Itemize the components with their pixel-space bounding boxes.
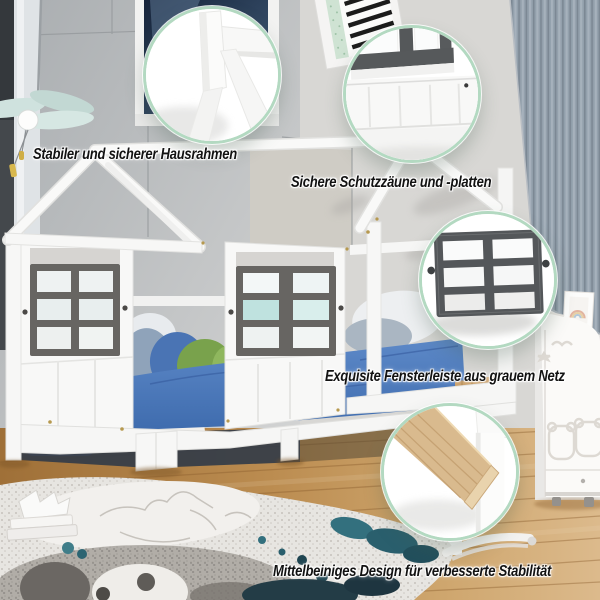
callout-window-mesh-detail: [419, 211, 557, 349]
fan-pull-tassel: [19, 151, 24, 160]
callout-center-leg-detail: [381, 403, 519, 541]
product-image: Stabiler und sicherer Hausrahmen Sichere…: [0, 0, 600, 600]
bed-leg: [281, 428, 298, 461]
fence-panel-zoom: [346, 28, 478, 160]
mesh-window-center: [228, 266, 343, 356]
mesh-window-left: [22, 264, 127, 356]
rug-bear-nose: [137, 573, 155, 591]
feature-label-mittelbein: Mittelbeiniges Design für verbesserte St…: [273, 563, 551, 581]
window-hinge: [228, 309, 233, 314]
window-mesh-zoom: [422, 214, 554, 346]
feature-label-fensterleiste: Exquisite Fensterleiste aus grauem Netz: [325, 368, 565, 386]
callout-roof-joint-detail: [143, 6, 281, 144]
fence-panel-center: [225, 242, 345, 429]
window-hinge: [122, 305, 127, 310]
feature-label-schutzzaeune: Sichere Schutzzäune und -platten: [291, 174, 491, 192]
center-leg-zoom: [384, 406, 516, 538]
bed-left-post: [6, 236, 21, 460]
fence-panel-left: [20, 236, 133, 444]
window-hinge: [22, 309, 27, 314]
callout-fence-panel-detail: [343, 25, 481, 163]
roof-joint-zoom: [146, 9, 278, 141]
drawer-knob: [581, 479, 585, 483]
window-hinge: [338, 305, 343, 310]
wall-panel: [250, 145, 352, 254]
feature-label-hausrahmen: Stabiler und sicherer Hausrahmen: [33, 146, 237, 164]
